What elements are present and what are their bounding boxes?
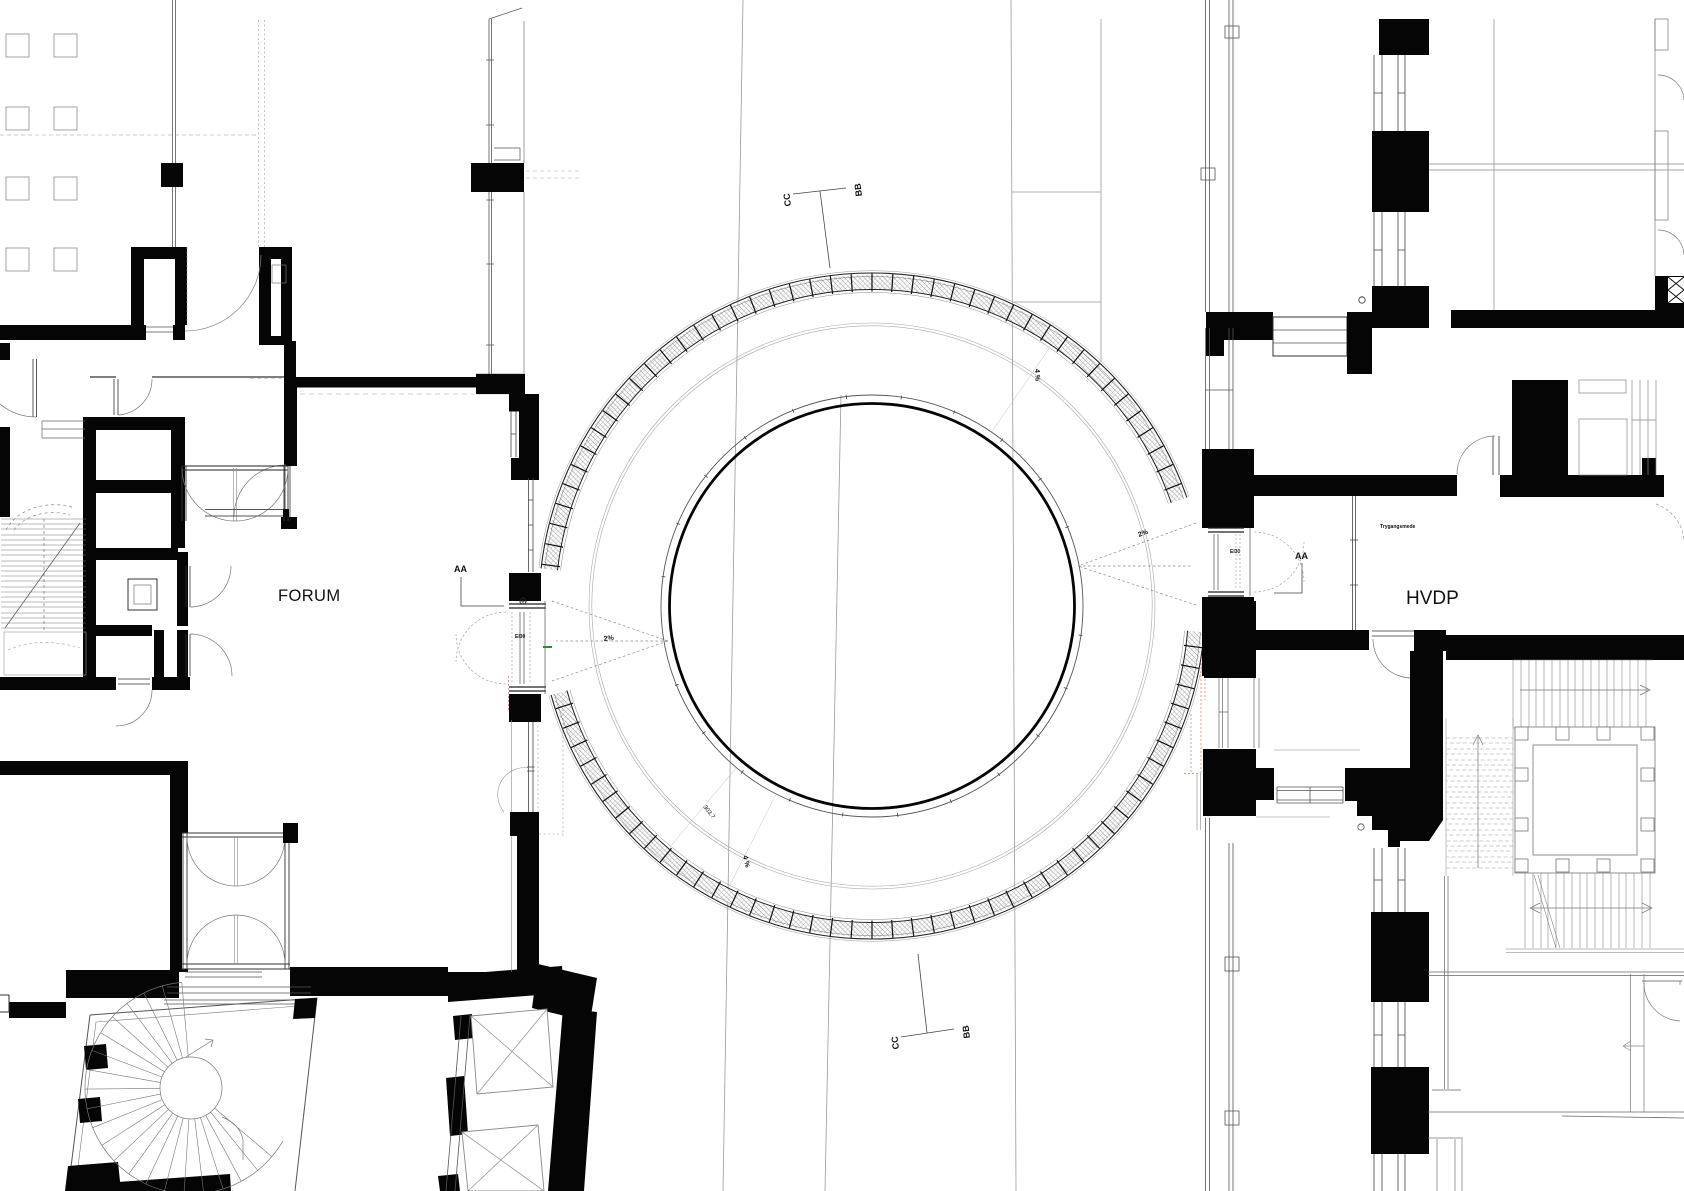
svg-text:CC: CC (889, 1035, 901, 1050)
svg-text:4 %: 4 % (1033, 369, 1040, 382)
svg-text:CC: CC (781, 192, 793, 207)
svg-text:HVDP: HVDP (1406, 588, 1459, 609)
svg-text:BB: BB (960, 1024, 972, 1039)
svg-text:BB: BB (852, 182, 864, 197)
svg-text:FORUM: FORUM (278, 587, 341, 605)
svg-text:EI30: EI30 (1230, 549, 1241, 555)
svg-text:AA: AA (454, 564, 467, 574)
svg-text:Trygangsmede: Trygangsmede (1380, 524, 1416, 530)
